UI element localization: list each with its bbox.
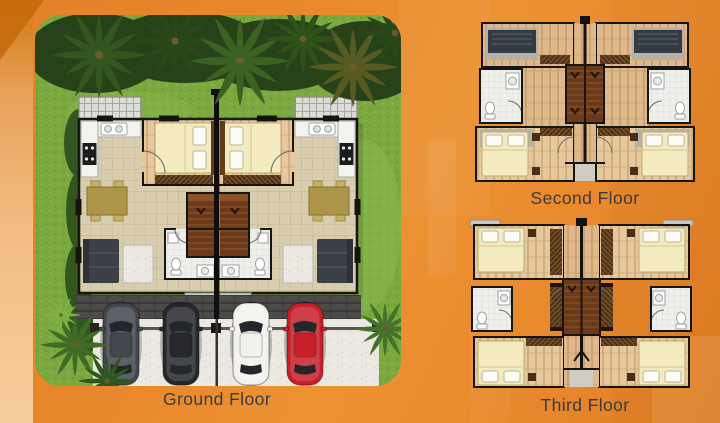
patio-slab — [123, 245, 153, 283]
background-shape — [428, 140, 456, 275]
third-floor-label: Third Floor — [540, 395, 629, 416]
sofa — [83, 239, 119, 283]
rear-balcony — [574, 163, 596, 181]
bathroom — [480, 69, 522, 123]
party-wall-stub — [576, 218, 587, 226]
third-floor-unit-left — [470, 220, 564, 387]
ground-floor-label: Ground Floor — [163, 389, 271, 410]
house-unit-left — [76, 97, 217, 304]
wardrobe — [540, 127, 572, 136]
brochure-canvas: Ground Floor — [0, 0, 720, 423]
side-table — [528, 229, 536, 237]
bathroom — [472, 287, 512, 331]
central-staircase — [566, 65, 604, 123]
third-floor-plan — [464, 217, 700, 393]
wardrobe — [155, 175, 213, 184]
master-bedroom — [476, 127, 574, 181]
ground-floor-panel — [35, 15, 401, 386]
bed — [478, 228, 524, 272]
dining-set — [87, 181, 127, 221]
side-table — [532, 133, 540, 141]
bedroom-bottom — [474, 337, 564, 387]
bed — [482, 132, 528, 176]
wardrobe — [526, 337, 562, 346]
second-floor-plan — [470, 15, 700, 187]
car-black — [160, 301, 203, 386]
third-floor-unit-right — [599, 220, 693, 387]
background-left-band — [0, 0, 33, 423]
central-staircase — [563, 279, 600, 335]
second-floor-label: Second Floor — [531, 188, 640, 209]
closet — [550, 283, 563, 331]
party-wall-stub — [580, 16, 590, 24]
central-core — [563, 218, 600, 387]
side-table — [532, 167, 540, 175]
side-table — [528, 373, 536, 381]
closet — [540, 55, 570, 64]
bedroom-top — [470, 220, 564, 279]
staircase — [187, 193, 216, 257]
second-floor-unit-left — [476, 23, 574, 181]
ground-floor-plan — [35, 15, 401, 386]
closet — [550, 229, 562, 275]
car-red — [284, 301, 327, 386]
bed — [478, 341, 524, 385]
rear-balcony — [570, 369, 593, 387]
kitchen-stove — [83, 143, 97, 165]
car-white — [230, 301, 273, 386]
house-unit-right — [220, 97, 361, 304]
second-floor-unit-right — [596, 23, 694, 181]
